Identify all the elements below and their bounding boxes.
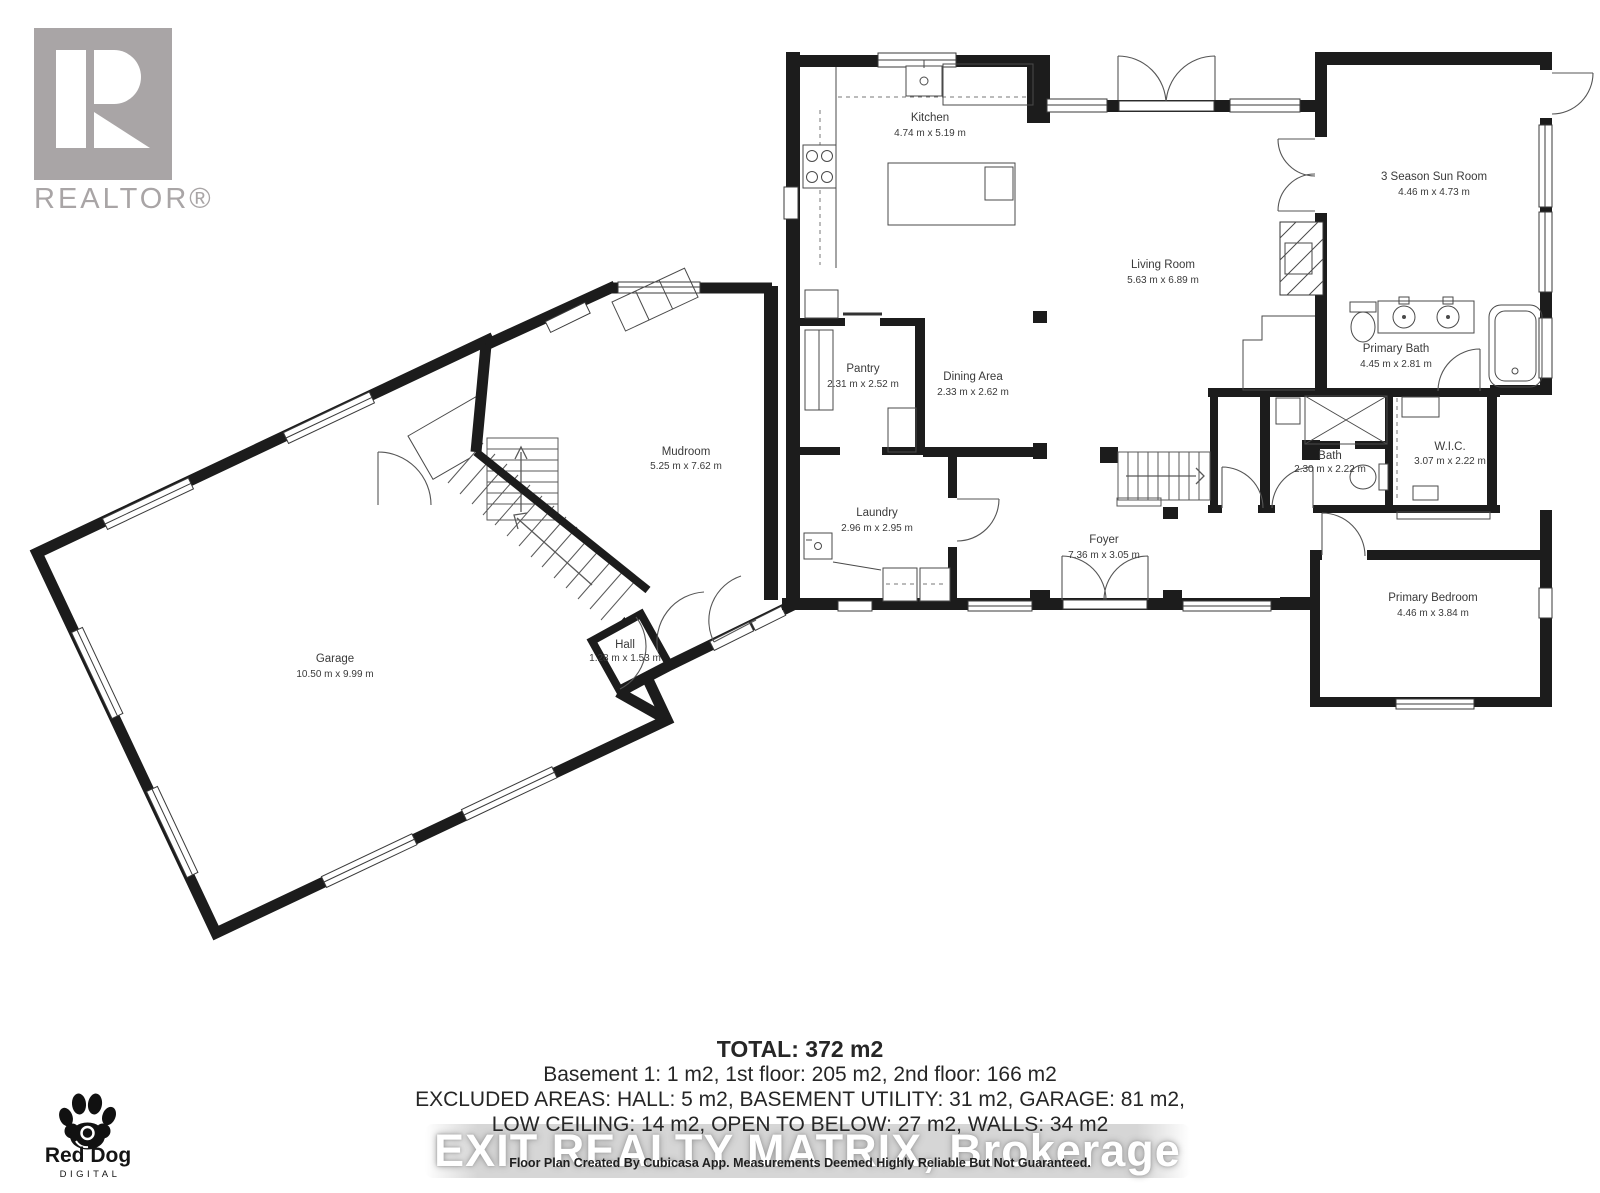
- realtor-logo-icon: [34, 28, 172, 180]
- summary-line-excluded: EXCLUDED AREAS: HALL: 5 m2, BASEMENT UTI…: [0, 1087, 1600, 1112]
- kitchen-sink-icon: [906, 66, 942, 96]
- bath-sink-icon: [1276, 398, 1300, 424]
- room-label-bath: Bath: [1318, 450, 1342, 462]
- room-dims-living-room: 5.63 m x 6.89 m: [1127, 275, 1199, 286]
- stove-icon: [803, 145, 836, 188]
- floor-plan-svg: REALTOR®: [0, 0, 1600, 1193]
- room-dims-dining-area: 2.33 m x 2.62 m: [937, 387, 1009, 398]
- room-dims-hall: 1.28 m x 1.53 m: [589, 653, 661, 664]
- room-dims-wic: 3.07 m x 2.22 m: [1414, 456, 1486, 467]
- room-dims-sun-room: 4.46 m x 4.73 m: [1398, 187, 1470, 198]
- summary-line-excluded2: LOW CEILING: 14 m2, OPEN TO BELOW: 27 m2…: [0, 1112, 1600, 1137]
- room-dims-kitchen: 4.74 m x 5.19 m: [894, 128, 966, 139]
- room-label-pantry: Pantry: [846, 363, 879, 375]
- room-label-sun-room: 3 Season Sun Room: [1381, 171, 1487, 183]
- room-dims-bath: 2.30 m x 2.22 m: [1294, 464, 1366, 475]
- room-label-garage: Garage: [316, 653, 354, 665]
- cubicasa-disclaimer: Floor Plan Created By Cubicasa App. Meas…: [0, 1156, 1600, 1170]
- room-label-foyer: Foyer: [1089, 534, 1119, 546]
- room-dims-laundry: 2.96 m x 2.95 m: [841, 523, 913, 534]
- room-label-kitchen: Kitchen: [911, 112, 949, 124]
- room-dims-foyer: 7.36 m x 3.05 m: [1068, 550, 1140, 561]
- room-dims-mudroom: 5.25 m x 7.62 m: [650, 461, 722, 472]
- room-label-dining-area: Dining Area: [943, 371, 1003, 383]
- room-dims-primary-bedroom: 4.46 m x 3.84 m: [1397, 608, 1469, 619]
- floor-plan-page: REALTOR®: [0, 0, 1600, 1193]
- area-summary: TOTAL: 372 m2 Basement 1: 1 m2, 1st floo…: [0, 1036, 1600, 1137]
- laundry-sink-icon: [804, 533, 832, 559]
- room-label-mudroom: Mudroom: [662, 446, 711, 458]
- room-dims-primary-bath: 4.45 m x 2.81 m: [1360, 359, 1432, 370]
- room-label-primary-bedroom: Primary Bedroom: [1388, 592, 1477, 604]
- summary-total: TOTAL: 372 m2: [0, 1036, 1600, 1062]
- primary-bath-toilet-icon: [1351, 312, 1375, 342]
- fireplace-icon: [1280, 222, 1323, 295]
- room-label-laundry: Laundry: [856, 507, 898, 519]
- room-label-wic: W.I.C.: [1434, 441, 1465, 453]
- room-label-primary-bath: Primary Bath: [1363, 343, 1429, 355]
- summary-line-floors: Basement 1: 1 m2, 1st floor: 205 m2, 2nd…: [0, 1062, 1600, 1087]
- room-dims-garage: 10.50 m x 9.99 m: [296, 669, 373, 680]
- room-dims-pantry: 2.31 m x 2.52 m: [827, 379, 899, 390]
- room-label-living-room: Living Room: [1131, 259, 1195, 271]
- reddog-sub-wordmark: DIGITAL: [60, 1169, 121, 1180]
- room-label-hall: Hall: [615, 639, 635, 651]
- realtor-wordmark: REALTOR®: [34, 183, 214, 215]
